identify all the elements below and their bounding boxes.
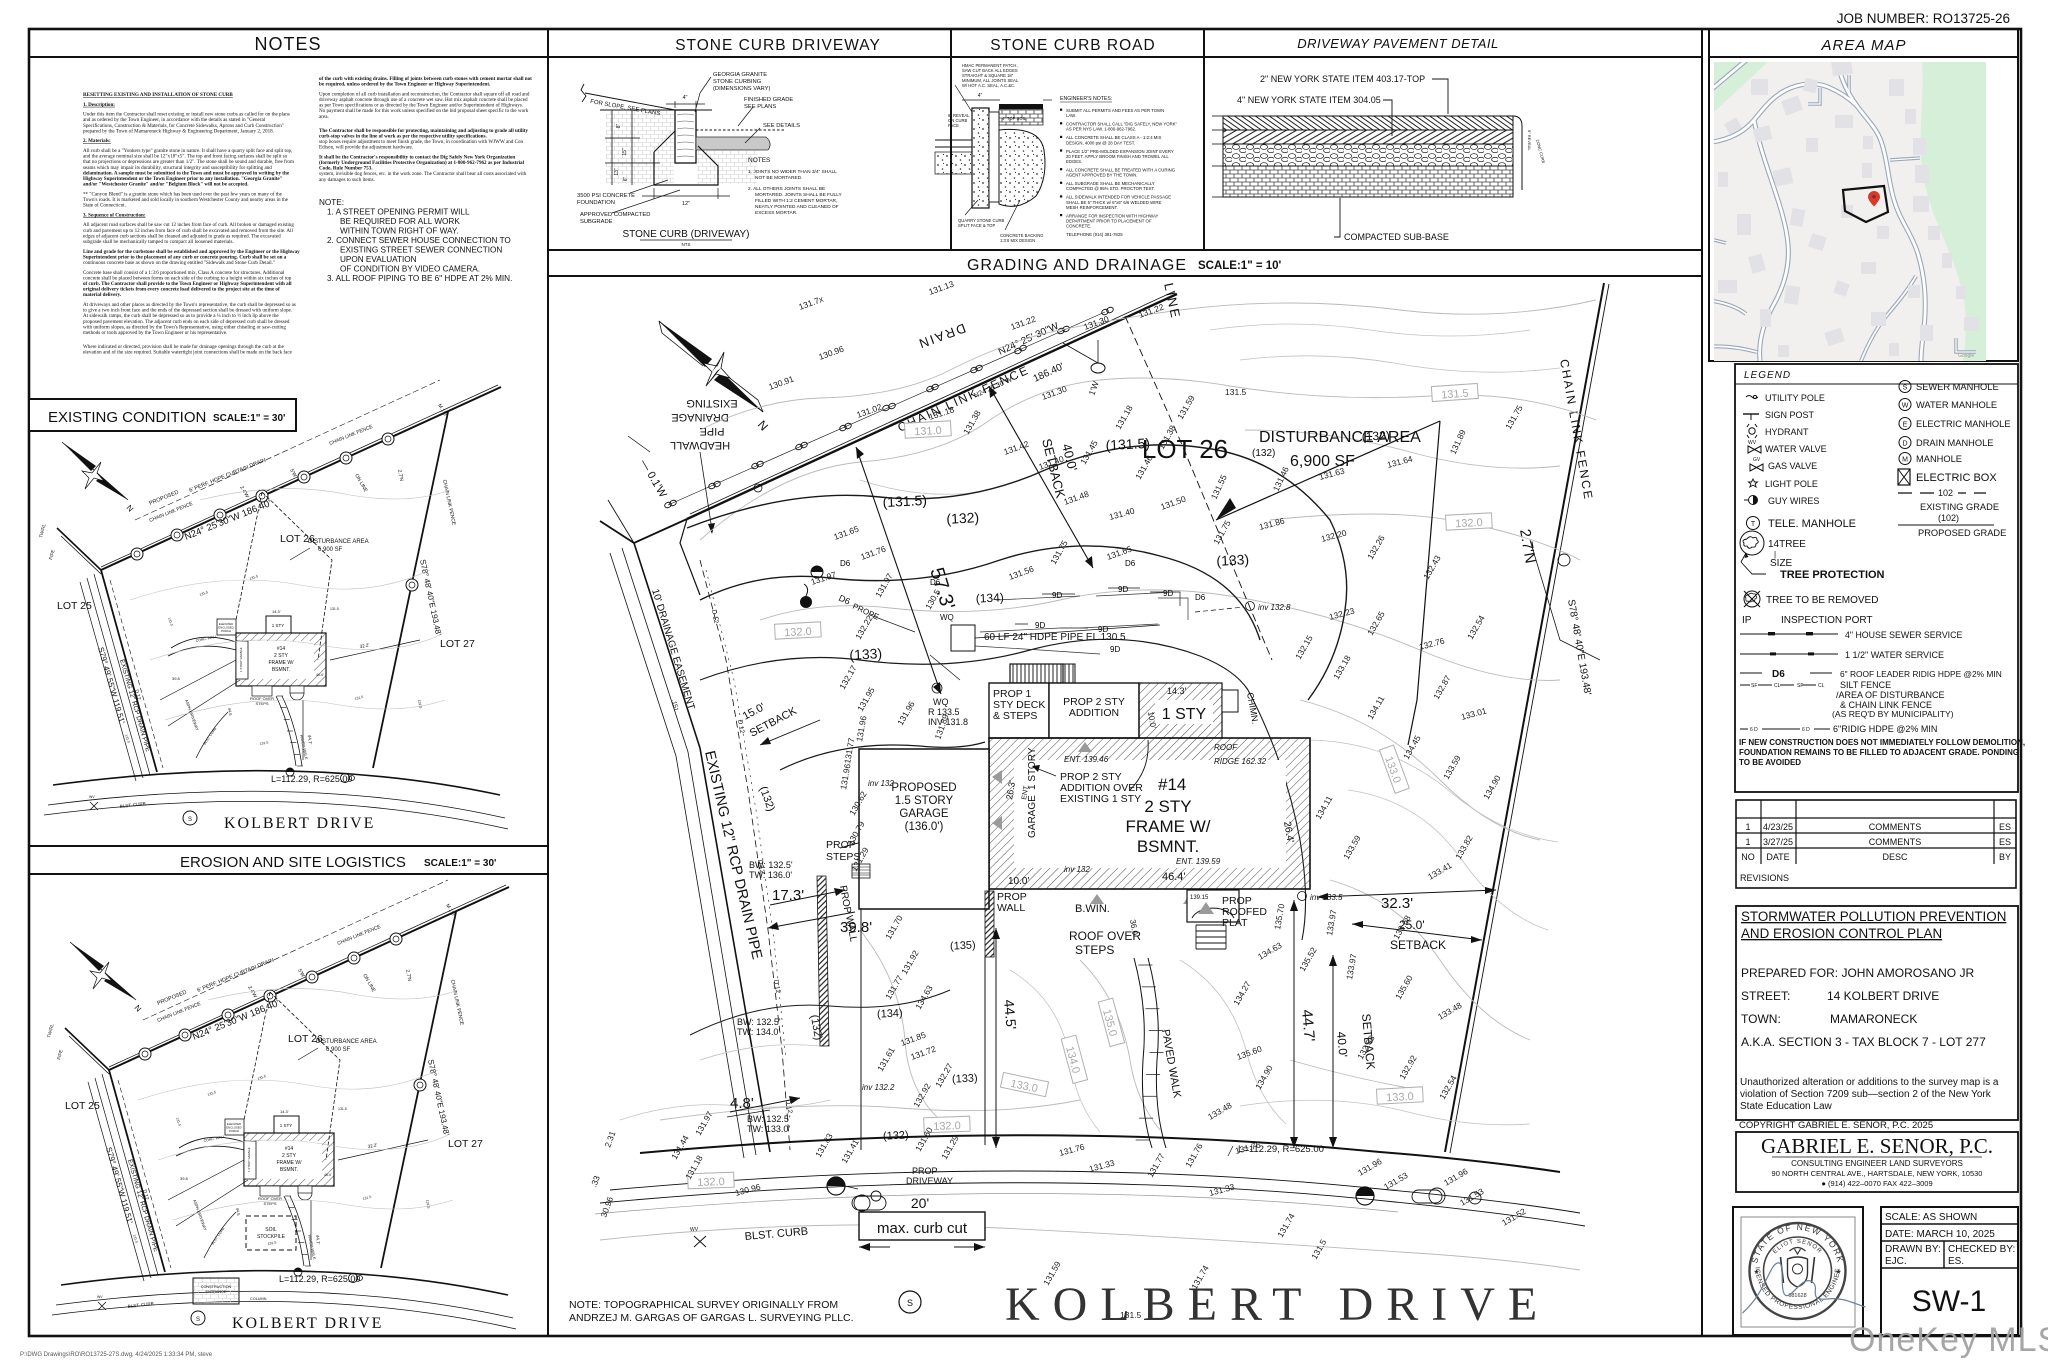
svg-text:(DIMENSIONS VARY): (DIMENSIONS VARY)	[713, 86, 771, 92]
svg-text:inv 133.5: inv 133.5	[1310, 893, 1343, 902]
svg-text:NOTE: TOPOGRAPHICAL SURVEY ORI: NOTE: TOPOGRAPHICAL SURVEY ORIGINALLY FR…	[569, 1299, 838, 1311]
svg-text:SEE PLANS: SEE PLANS	[744, 104, 776, 110]
svg-text:CONSTRUCTION: CONSTRUCTION	[201, 1285, 232, 1289]
svg-text:132.0: 132.0	[697, 1176, 725, 1189]
svg-text:SEWER MANHOLE: SEWER MANHOLE	[1916, 382, 1999, 392]
svg-text:GV: GV	[1753, 457, 1761, 463]
svg-text:133.0: 133.0	[1386, 1091, 1414, 1104]
svg-text:MAMARONECK: MAMARONECK	[1830, 1012, 1917, 1026]
svg-text:9D: 9D	[1052, 591, 1062, 600]
svg-text:RIDGE 162.32: RIDGE 162.32	[1214, 757, 1267, 766]
svg-text:#14: #14	[1158, 775, 1186, 794]
svg-text:MORTARED. JOINTS SHALL BE FULL: MORTARED. JOINTS SHALL BE FULLY	[755, 192, 843, 198]
svg-text:ES: ES	[1999, 837, 2011, 847]
svg-text:SPLIT FACE & TOP: SPLIT FACE & TOP	[958, 223, 995, 228]
svg-text:WALL: WALL	[997, 902, 1025, 914]
svg-text:2. CONNECT SEWER HOUSE CONN: 2. CONNECT SEWER HOUSE CONNECTION TO	[327, 236, 511, 245]
svg-text:IP: IP	[1742, 615, 1752, 626]
svg-text:be required, unless ordered by: be required, unless ordered by the Town …	[319, 82, 491, 88]
svg-text:TW: 133.0': TW: 133.0'	[747, 1124, 790, 1134]
svg-text:HEADWALL: HEADWALL	[670, 439, 730, 451]
svg-text:EXCESS MORTAR.: EXCESS MORTAR.	[755, 210, 797, 216]
svg-text:CL: CL	[1774, 683, 1781, 689]
svg-text:DISTURBANCE AREA: DISTURBANCE AREA	[1259, 429, 1421, 446]
svg-text:inv 132: inv 132	[868, 779, 894, 788]
svg-text:4" TOP SOIL: 4" TOP SOIL	[1002, 116, 1027, 121]
svg-text:6,900 SF: 6,900 SF	[1290, 453, 1355, 470]
svg-text:EXISTING GRADE: EXISTING GRADE	[1920, 502, 1999, 512]
svg-text:3500 PSI CONCRETE: 3500 PSI CONCRETE	[577, 193, 635, 199]
svg-text:131.5: 131.5	[1225, 387, 1247, 397]
svg-text:LIGHT POLE: LIGHT POLE	[1765, 479, 1818, 489]
svg-text:1 1/2" WATER SERVICE: 1 1/2" WATER SERVICE	[1845, 650, 1944, 660]
svg-text:39.8': 39.8'	[840, 919, 872, 936]
svg-text:WV: WV	[1748, 440, 1757, 446]
svg-text:132.0: 132.0	[784, 626, 812, 639]
svg-text:AS PER NYS LAW. 1-800-962-7962: AS PER NYS LAW. 1-800-962-7962.	[1066, 127, 1136, 132]
svg-text:ELECTRIC MANHOLE: ELECTRIC MANHOLE	[1916, 419, 2011, 429]
svg-text:CONSULTING ENGINEER LAND: CONSULTING ENGINEER LAND SURVEYORS	[1791, 1159, 1963, 1168]
svg-text:inv 132: inv 132	[1064, 865, 1090, 874]
svg-text:S: S	[907, 1298, 913, 1308]
svg-text:3. Sequence of Construction:: 3. Sequence of Construction:	[83, 212, 146, 218]
svg-text:T: T	[1751, 521, 1756, 528]
svg-text:W: W	[1902, 403, 1909, 410]
svg-text:40.0': 40.0'	[1334, 1031, 1350, 1058]
svg-text:NEATLY POINTED AND CLEANED OF: NEATLY POINTED AND CLEANED OF	[755, 204, 839, 210]
svg-text:13": 13"	[614, 168, 620, 176]
svg-text:(133): (133)	[1216, 551, 1249, 569]
svg-text:1.5 STORY: 1.5 STORY	[895, 795, 954, 807]
svg-text:OF CONDITION BY VIDEO CAMERA.: OF CONDITION BY VIDEO CAMERA.	[340, 265, 480, 274]
svg-text:(132): (132)	[1252, 448, 1275, 459]
svg-text:(132): (132)	[946, 509, 979, 527]
svg-text:ENT. 139.59: ENT. 139.59	[1176, 857, 1221, 866]
svg-text:B.WIN.: B.WIN.	[1075, 903, 1110, 915]
svg-text:PROPOSED: PROPOSED	[891, 782, 956, 794]
svg-text:NOTE:: NOTE:	[319, 198, 344, 207]
svg-text:3/27/25: 3/27/25	[1763, 837, 1793, 847]
svg-text:SOIL: SOIL	[265, 1227, 277, 1233]
svg-text:GUY WIRES: GUY WIRES	[1768, 496, 1819, 506]
svg-text:/AREA OF DISTURBANCE: /AREA OF DISTURBANCE	[1836, 690, 1945, 700]
svg-text:10.0': 10.0'	[1008, 876, 1029, 887]
svg-text:SCALE:1" = 30': SCALE:1" = 30'	[424, 858, 496, 869]
svg-text:ENTRANCE: ENTRANCE	[206, 1290, 227, 1294]
svg-text:6 D: 6 D	[1750, 727, 1758, 733]
svg-text:methods or tools approved by t: methods or tools approved by the Town En…	[83, 330, 227, 336]
svg-text:FACE: FACE	[948, 123, 959, 128]
svg-text:max. curb cut: max. curb cut	[877, 1220, 968, 1237]
svg-text:EXISTING 1 STY: EXISTING 1 STY	[1060, 793, 1141, 805]
svg-text:TO BE AVOIDED: TO BE AVOIDED	[1739, 758, 1801, 767]
svg-text:1. JOINTS NO WIDER THAN 3/4": 1. JOINTS NO WIDER THAN 3/4" SHALL	[748, 169, 837, 175]
svg-text:4" NEW YORK STATE ITEM 304.05: 4" NEW YORK STATE ITEM 304.05	[1237, 95, 1381, 105]
svg-text:BSMNT.: BSMNT.	[1137, 837, 1199, 856]
svg-text:1. Description:: 1. Description:	[83, 102, 115, 108]
svg-text:STONE CURBING: STONE CURBING	[713, 79, 762, 85]
svg-text:PROP: PROP	[912, 1166, 938, 1176]
svg-text:ES: ES	[1999, 822, 2011, 832]
svg-text:(131.5): (131.5)	[882, 492, 927, 510]
svg-text:(136.0'): (136.0')	[905, 821, 944, 833]
svg-text:TELEPHONE (914) 381-7825: TELEPHONE (914) 381-7825	[1066, 232, 1123, 237]
svg-text:UPON EVALUATION: UPON EVALUATION	[340, 255, 417, 264]
svg-text:SF: SF	[1797, 683, 1803, 689]
svg-text:State Education Law: State Education Law	[1740, 1101, 1833, 1112]
svg-text:STORMWATER POLLUTION PREVENTIO: STORMWATER POLLUTION PREVENTION	[1741, 909, 2006, 924]
svg-text:EROSION AND SITE LOGISTICS: EROSION AND SITE LOGISTICS	[180, 854, 406, 871]
svg-text:COMMENTS: COMMENTS	[1869, 822, 1922, 832]
svg-text:WV: WV	[690, 1227, 699, 1233]
svg-text:DATE: DATE	[1766, 852, 1789, 862]
svg-text:14TREE: 14TREE	[1768, 539, 1806, 550]
svg-text:ENGINEER'S NOTES:: ENGINEER'S NOTES:	[1060, 96, 1112, 102]
svg-text:NOTES: NOTES	[254, 34, 321, 54]
svg-text:SIGN POST: SIGN POST	[1765, 410, 1815, 420]
svg-text:6" REVEAL: 6" REVEAL	[1527, 130, 1532, 151]
svg-text:(135): (135)	[950, 939, 976, 952]
svg-text:SW-1: SW-1	[1912, 1285, 1986, 1318]
svg-text:PIPE: PIPE	[699, 425, 724, 437]
svg-text:4" HOUSE SEWER SERVICE: 4" HOUSE SEWER SERVICE	[1845, 630, 1962, 640]
svg-text:(133): (133)	[952, 1072, 978, 1085]
svg-text:2 STY: 2 STY	[1144, 797, 1191, 816]
svg-text:UTILITY POLE: UTILITY POLE	[1765, 393, 1825, 403]
svg-text:FOUNDATION REMAINS TO BE FILLE: FOUNDATION REMAINS TO BE FILLED TO ADJAC…	[1739, 748, 2019, 757]
svg-text:COLUMN: COLUMN	[250, 1297, 267, 1301]
svg-text:(134): (134)	[877, 1007, 903, 1020]
svg-text:SUBGRADE: SUBGRADE	[580, 219, 613, 225]
svg-text:SIZE: SIZE	[1770, 558, 1793, 569]
svg-text:E: E	[1903, 422, 1908, 429]
svg-text:(134): (134)	[975, 590, 1004, 605]
svg-text:STEPS: STEPS	[1075, 943, 1114, 957]
svg-text:COMMENTS: COMMENTS	[1869, 837, 1922, 847]
svg-text:Google: Google	[1958, 353, 1974, 359]
svg-text:1 STY: 1 STY	[1162, 706, 1207, 723]
svg-text:4.8': 4.8'	[730, 1095, 754, 1112]
svg-text:102: 102	[1938, 488, 1953, 498]
svg-text:RESETTING EXISTING AND INSTALL: RESETTING EXISTING AND INSTALLATION OF S…	[83, 92, 233, 98]
svg-text:PROPOSED GRADE: PROPOSED GRADE	[1918, 528, 2006, 538]
svg-text:DATE: MARCH 10, 2025: DATE: MARCH 10, 2025	[1885, 1229, 1995, 1240]
svg-text:9D: 9D	[1163, 589, 1173, 598]
svg-text:1. A STREET OPENING PERMIT: 1. A STREET OPENING PERMIT WILL	[327, 208, 470, 217]
svg-text:D6: D6	[1772, 669, 1785, 680]
svg-text:NOT BE MORTARED.: NOT BE MORTARED.	[755, 175, 802, 181]
svg-text:9D: 9D	[1118, 585, 1128, 594]
svg-text:COPYRIGHT GABRIEL E. SENOR, P.: COPYRIGHT GABRIEL E. SENOR, P.C. 2025	[1739, 1120, 1933, 1131]
svg-text:M: M	[1902, 457, 1908, 464]
svg-text:TREE TO BE REMOVED: TREE TO BE REMOVED	[1766, 595, 1878, 606]
svg-text:CONCRETE.: CONCRETE.	[1066, 224, 1091, 229]
svg-text:any damages to such items.: any damages to such items.	[319, 177, 375, 183]
svg-text:SUBMIT ALL PERMITS AND FEES AS: SUBMIT ALL PERMITS AND FEES AS PER TOWN	[1066, 108, 1164, 113]
svg-text:BE REQUIRED FOR ALL WORK: BE REQUIRED FOR ALL WORK	[340, 217, 460, 226]
svg-text:FRAME W/: FRAME W/	[1126, 817, 1211, 836]
svg-text:6": 6"	[623, 177, 629, 182]
svg-text:132.0: 132.0	[1455, 517, 1483, 530]
svg-text:FINISHED GRADE: FINISHED GRADE	[744, 97, 793, 103]
svg-text:131.5: 131.5	[1120, 1310, 1142, 1320]
svg-text:TW: 136.0': TW: 136.0'	[749, 870, 792, 880]
svg-text:1:3:6 MIX DESIGN: 1:3:6 MIX DESIGN	[1000, 238, 1035, 243]
svg-text:material delivery.: material delivery.	[83, 292, 122, 298]
svg-text:ROOF: ROOF	[1214, 743, 1238, 752]
svg-text:GRADING AND DRAINAGE: GRADING AND DRAINAGE	[967, 257, 1187, 274]
svg-text:SILT FENCE: SILT FENCE	[1840, 680, 1891, 690]
svg-text:BW: 132.5': BW: 132.5'	[749, 860, 793, 870]
svg-text:D6: D6	[1195, 593, 1206, 602]
svg-text:Edison, will provide the adjus: Edison, will provide the adjustment hard…	[319, 145, 413, 151]
svg-text:BW: 132.5': BW: 132.5'	[747, 1114, 791, 1124]
svg-text:DRIVEWAY: DRIVEWAY	[906, 1176, 953, 1186]
svg-text:EJC.: EJC.	[1885, 1256, 1907, 1267]
svg-text:● (914) 422–0070 FAX 422–: ● (914) 422–0070 FAX 422–3009	[1821, 1179, 1932, 1188]
svg-text:WATER MANHOLE: WATER MANHOLE	[1916, 400, 1997, 410]
svg-text:4": 4"	[978, 93, 983, 99]
svg-text:area.: area.	[319, 114, 329, 120]
svg-text:IF NEW CONSTRUCTION DOES NOT I: IF NEW CONSTRUCTION DOES NOT IMMEDIATELY…	[1739, 738, 2025, 747]
svg-text:HYDRANT: HYDRANT	[1765, 427, 1809, 437]
svg-text:(132): (132)	[883, 1129, 909, 1142]
svg-text:2. ALL OTHERS JOINTS SHALL B: 2. ALL OTHERS JOINTS SHALL BE	[748, 186, 825, 192]
svg-text:SEE DETAILS: SEE DETAILS	[763, 123, 800, 129]
svg-text:OneKey MLS: OneKey MLS	[1849, 1321, 2048, 1359]
svg-text:★: ★	[1753, 1268, 1759, 1276]
svg-text:COMPACTED SUB-BASE: COMPACTED SUB-BASE	[1344, 232, 1449, 242]
svg-text:WITHIN TOWN RIGHT OF WAY.: WITHIN TOWN RIGHT OF WAY.	[340, 227, 459, 236]
svg-text:and/or "Westchester Granite" a: and/or "Westchester Granite" and/or "Bel…	[83, 182, 249, 188]
svg-text:STOCKPILE: STOCKPILE	[257, 1234, 286, 1240]
svg-text:BY: BY	[1999, 852, 2011, 862]
svg-text:ADDITION: ADDITION	[1069, 707, 1119, 719]
svg-text:WATER VALVE: WATER VALVE	[1765, 444, 1827, 454]
svg-text:ENT. 139.46: ENT. 139.46	[1064, 755, 1109, 764]
svg-text:46.4': 46.4'	[1162, 871, 1186, 883]
svg-text:44.7': 44.7'	[1298, 1009, 1318, 1043]
svg-text:14 KOLBERT DRIVE: 14 KOLBERT DRIVE	[1827, 989, 1939, 1003]
svg-text:prepared by the Town of Mamaro: prepared by the Town of Mamaroneck Highw…	[83, 127, 274, 134]
svg-text:DRAWN BY:: DRAWN BY:	[1885, 1244, 1941, 1255]
svg-text:(133): (133)	[849, 645, 882, 663]
svg-text:12": 12"	[682, 201, 690, 207]
svg-text:SCALE: AS SHOWN: SCALE: AS SHOWN	[1885, 1212, 1977, 1223]
svg-text:MANHOLE: MANHOLE	[1916, 454, 1962, 464]
svg-text:3. ALL ROOF PIPING TO BE 6": 3. ALL ROOF PIPING TO BE 6" HDPE AT 2% M…	[327, 274, 512, 283]
svg-text:D6: D6	[840, 559, 851, 568]
svg-text:TELE. MANHOLE: TELE. MANHOLE	[1768, 518, 1856, 530]
svg-text:ANDRZEJ M. GARGAS OF GARGAS L.: ANDRZEJ M. GARGAS OF GARGAS L. SURVEYING…	[569, 1312, 854, 1324]
svg-text:EXISTING: EXISTING	[686, 397, 737, 409]
svg-text:32.3': 32.3'	[1381, 895, 1413, 912]
svg-text:2" NEW YORK STATE ITEM 403.17-: 2" NEW YORK STATE ITEM 403.17-TOP	[1260, 74, 1425, 84]
svg-text:1 STORY: 1 STORY	[1027, 747, 1038, 790]
svg-text:6 D: 6 D	[1802, 727, 1810, 733]
svg-text:TREE PROTECTION: TREE PROTECTION	[1780, 569, 1885, 581]
svg-text:NOTES: NOTES	[748, 157, 771, 164]
svg-text:ELECTRIC BOX: ELECTRIC BOX	[1916, 472, 1997, 484]
svg-text:15": 15"	[622, 148, 628, 156]
svg-text:NTS: NTS	[682, 242, 691, 247]
svg-text:MESH REINFORCEMENT.: MESH REINFORCEMENT.	[1066, 205, 1118, 210]
svg-text:AGENT APPROVED BY THE TOWN.: AGENT APPROVED BY THE TOWN.	[1066, 173, 1137, 178]
svg-text:CL: CL	[1818, 683, 1825, 689]
svg-text:TW: 134.0': TW: 134.0'	[737, 1027, 780, 1037]
svg-text:SCALE:1" = 10': SCALE:1" = 10'	[1198, 260, 1282, 272]
svg-text:139.15: 139.15	[1190, 895, 1209, 901]
svg-text:CHECKED BY:: CHECKED BY:	[1948, 1244, 2015, 1255]
svg-text:GAS VALVE: GAS VALVE	[1768, 461, 1817, 471]
svg-text:inv 132.8: inv 132.8	[1258, 603, 1291, 612]
svg-text:44.5': 44.5'	[1001, 999, 1020, 1030]
svg-text:STONE CURB ROAD: STONE CURB ROAD	[990, 37, 1155, 54]
svg-text:elevation and of the size requ: elevation and of the size required. Suit…	[83, 349, 293, 356]
svg-text:(AS REQ'D BY MUNICIPALITY): (AS REQ'D BY MUNICIPALITY)	[1832, 709, 1954, 719]
svg-text:LEGEND: LEGEND	[1744, 370, 1791, 381]
svg-text:AREA MAP: AREA MAP	[1821, 37, 1907, 54]
svg-text:131.5: 131.5	[1441, 388, 1469, 402]
svg-text:FILLED WITH 1:2 CEMENT MORTAR,: FILLED WITH 1:2 CEMENT MORTAR,	[755, 198, 837, 204]
svg-text:EXISTING CONDITION: EXISTING CONDITION	[48, 409, 206, 426]
svg-text:GABRIEL E. SENOR, P.C.: GABRIEL E. SENOR, P.C.	[1761, 1134, 1993, 1158]
svg-text:A.K.A. SECTION 3 - TAX BLOCK: A.K.A. SECTION 3 - TAX BLOCK 7 - LOT 277	[1741, 1035, 1986, 1049]
svg-text:DRAIN MANHOLE: DRAIN MANHOLE	[1916, 438, 1994, 448]
svg-text:GARAGE: GARAGE	[1027, 795, 1038, 838]
svg-text:131.0: 131.0	[914, 425, 942, 438]
svg-text:9D: 9D	[1110, 645, 1120, 654]
svg-text:14.3': 14.3'	[1167, 686, 1187, 696]
svg-text:violation of Section 7209 sub—: violation of Section 7209 sub—section 2 …	[1740, 1089, 1992, 1100]
svg-text:20': 20'	[911, 1195, 929, 1211]
svg-text:DESC: DESC	[1882, 852, 1908, 862]
svg-text:& STEPS: & STEPS	[993, 710, 1037, 722]
svg-text:DESIGN, 4000 psi @ 28 DAY TEST: DESIGN, 4000 psi @ 28 DAY TEST.	[1066, 140, 1135, 145]
svg-text:State of Connecticut.: State of Connecticut.	[83, 202, 126, 209]
svg-text:DRIVEWAY PAVEMENT DETAIL: DRIVEWAY PAVEMENT DETAIL	[1297, 36, 1499, 51]
svg-text:17.3': 17.3'	[772, 887, 804, 904]
svg-text:continuous concrete base as sh: continuous concrete base as shown on the…	[83, 260, 275, 266]
svg-text:1: 1	[1745, 837, 1750, 847]
svg-text:★: ★	[1835, 1268, 1841, 1276]
svg-text:4/23/25: 4/23/25	[1763, 822, 1793, 832]
svg-text:6" ROOF LEADER RIDIG HDPE @2%: 6" ROOF LEADER RIDIG HDPE @2% MIN	[1840, 669, 2002, 679]
svg-text:TOWN:: TOWN:	[1741, 1012, 1781, 1026]
svg-text:STONE CURB DRIVEWAY: STONE CURB DRIVEWAY	[675, 37, 881, 54]
svg-text:D: D	[1902, 441, 1907, 448]
svg-text:JOB NUMBER: RO13725-26: JOB NUMBER: RO13725-26	[1837, 11, 2010, 26]
svg-text:1: 1	[1745, 822, 1750, 832]
svg-text:No payment shall be made for t: No payment shall be made for this work u…	[319, 107, 529, 114]
svg-text:NO: NO	[1741, 852, 1755, 862]
svg-text:2. Materials:: 2. Materials:	[83, 138, 111, 144]
svg-text:GEORGIA GRANITE: GEORGIA GRANITE	[713, 72, 767, 78]
svg-text:LOT 26: LOT 26	[1142, 434, 1228, 464]
svg-text:FOUNDATION: FOUNDATION	[577, 200, 615, 206]
svg-text:GARAGE: GARAGE	[899, 808, 949, 820]
svg-text:STREET:: STREET:	[1741, 989, 1790, 1003]
svg-text:ES.: ES.	[1948, 1256, 1964, 1267]
svg-text:STONE CURB (DRIVEWAY): STONE CURB (DRIVEWAY)	[622, 229, 749, 240]
svg-text:6"RIDIG HDPE @2% MIN: 6"RIDIG HDPE @2% MIN	[1833, 724, 1937, 734]
svg-text:KOLBERT DRIVE: KOLBERT DRIVE	[1005, 1278, 1550, 1331]
svg-text:SF: SF	[1751, 683, 1757, 689]
svg-text:inv 132.2: inv 132.2	[862, 1083, 895, 1092]
svg-text:REVISIONS: REVISIONS	[1740, 873, 1789, 883]
svg-text:S: S	[1903, 385, 1908, 392]
svg-text:COMPACTED @ 95% STD. PROCTOR: COMPACTED @ 95% STD. PROCTOR TEST.	[1066, 186, 1155, 191]
svg-text:APPROVED COMPACTED: APPROVED COMPACTED	[580, 212, 650, 218]
svg-text:LAW.: LAW.	[1066, 113, 1076, 118]
svg-text:AND EROSION CONTROL PLAN: AND EROSION CONTROL PLAN	[1741, 926, 1942, 941]
svg-text:EXISTING STREET SEWER CONNECTI: EXISTING STREET SEWER CONNECTION	[340, 246, 502, 255]
svg-text:INSPECTION PORT: INSPECTION PORT	[1781, 615, 1873, 626]
svg-text:8": 8"	[616, 124, 622, 129]
svg-text:Unauthorized alteration or add: Unauthorized alteration or additions to …	[1740, 1077, 1999, 1088]
svg-text:4": 4"	[682, 95, 687, 101]
svg-text:D6: D6	[1125, 559, 1136, 568]
svg-text:WQ: WQ	[933, 697, 949, 707]
svg-text:90 NORTH CENTRAL AVE., HARTSDA: 90 NORTH CENTRAL AVE., HARTSDALE, NEW YO…	[1772, 1169, 1983, 1178]
svg-text:SCALE:1" = 30': SCALE:1" = 30'	[213, 413, 285, 424]
svg-text:EDGES.: EDGES.	[1066, 159, 1082, 164]
svg-text:(102): (102)	[1938, 513, 1959, 523]
svg-text:P:\DWG Drawings\RO\RO13725-27S: P:\DWG Drawings\RO\RO13725-27S.dwg, 4/24…	[20, 1352, 213, 1358]
svg-text:W/ HOT A.C. SEAL, A.C.&C.: W/ HOT A.C. SEAL, A.C.&C.	[962, 83, 1015, 88]
svg-text:subgrade shall be mechanically: subgrade shall be mechanically tamped to…	[83, 239, 234, 245]
svg-text:WQ: WQ	[940, 613, 954, 622]
svg-text:PREPARED FOR: JOHN AMOROSANO J: PREPARED FOR: JOHN AMOROSANO JR	[1741, 966, 1974, 980]
svg-text:132.0: 132.0	[933, 1120, 961, 1133]
svg-text:BW: 132.5': BW: 132.5'	[737, 1017, 781, 1027]
